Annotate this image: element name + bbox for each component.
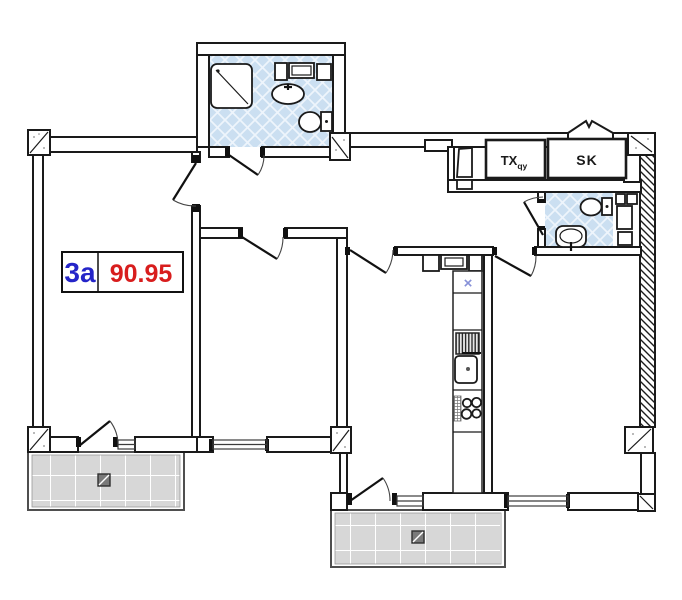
- living-room-door: [345, 247, 398, 273]
- balcony-drain-icon: [98, 474, 110, 486]
- unit-label-box: 3a 90.95: [62, 252, 183, 292]
- shaft-sk-label: SK: [576, 152, 597, 168]
- stove: [454, 396, 481, 421]
- window-center-balcony: [397, 496, 423, 506]
- balcony-left: [28, 452, 184, 510]
- balcony-drain-icon: [412, 531, 424, 543]
- right-room-door: [492, 247, 537, 276]
- middle-room-door: [238, 228, 288, 259]
- window-left-balcony: [118, 440, 135, 449]
- wc-sink: [556, 226, 586, 251]
- window-right-room: [504, 494, 570, 508]
- kitchen-wall-cabinets: [423, 255, 482, 271]
- wc-door: [524, 197, 545, 235]
- entrance-door-mark: [568, 121, 613, 133]
- floor-plan-canvas: TXqy SK: [0, 0, 682, 600]
- shaft-sk-box: SK: [548, 139, 626, 178]
- left-room-door: [173, 155, 200, 212]
- shaft-niche: [457, 148, 472, 189]
- kitchen-sink: [455, 356, 477, 383]
- bathroom-door: [225, 147, 265, 175]
- kitchen-counter: ×: [453, 271, 482, 493]
- shower-cabin: [211, 64, 252, 108]
- bathroom-cabinets: [275, 63, 331, 80]
- unit-code: 3a: [64, 257, 96, 288]
- floor-plan-page: TXqy SK: [0, 0, 682, 600]
- balcony-center-door: [347, 478, 397, 505]
- fridge: [456, 333, 481, 354]
- shaft-tx-box: TXqy: [486, 140, 545, 178]
- bathroom-sink: [272, 84, 304, 104]
- bathroom-toilet: [299, 112, 332, 132]
- unit-area: 90.95: [110, 260, 173, 288]
- window-middle-room: [209, 439, 269, 451]
- balcony-left-door: [76, 421, 118, 447]
- wc-toilet: [581, 198, 613, 216]
- balcony-center: [331, 510, 505, 567]
- vent-valve-mark: ×: [464, 275, 473, 292]
- wc-shelves: [616, 194, 637, 245]
- exterior-masonry-wall: [640, 155, 655, 427]
